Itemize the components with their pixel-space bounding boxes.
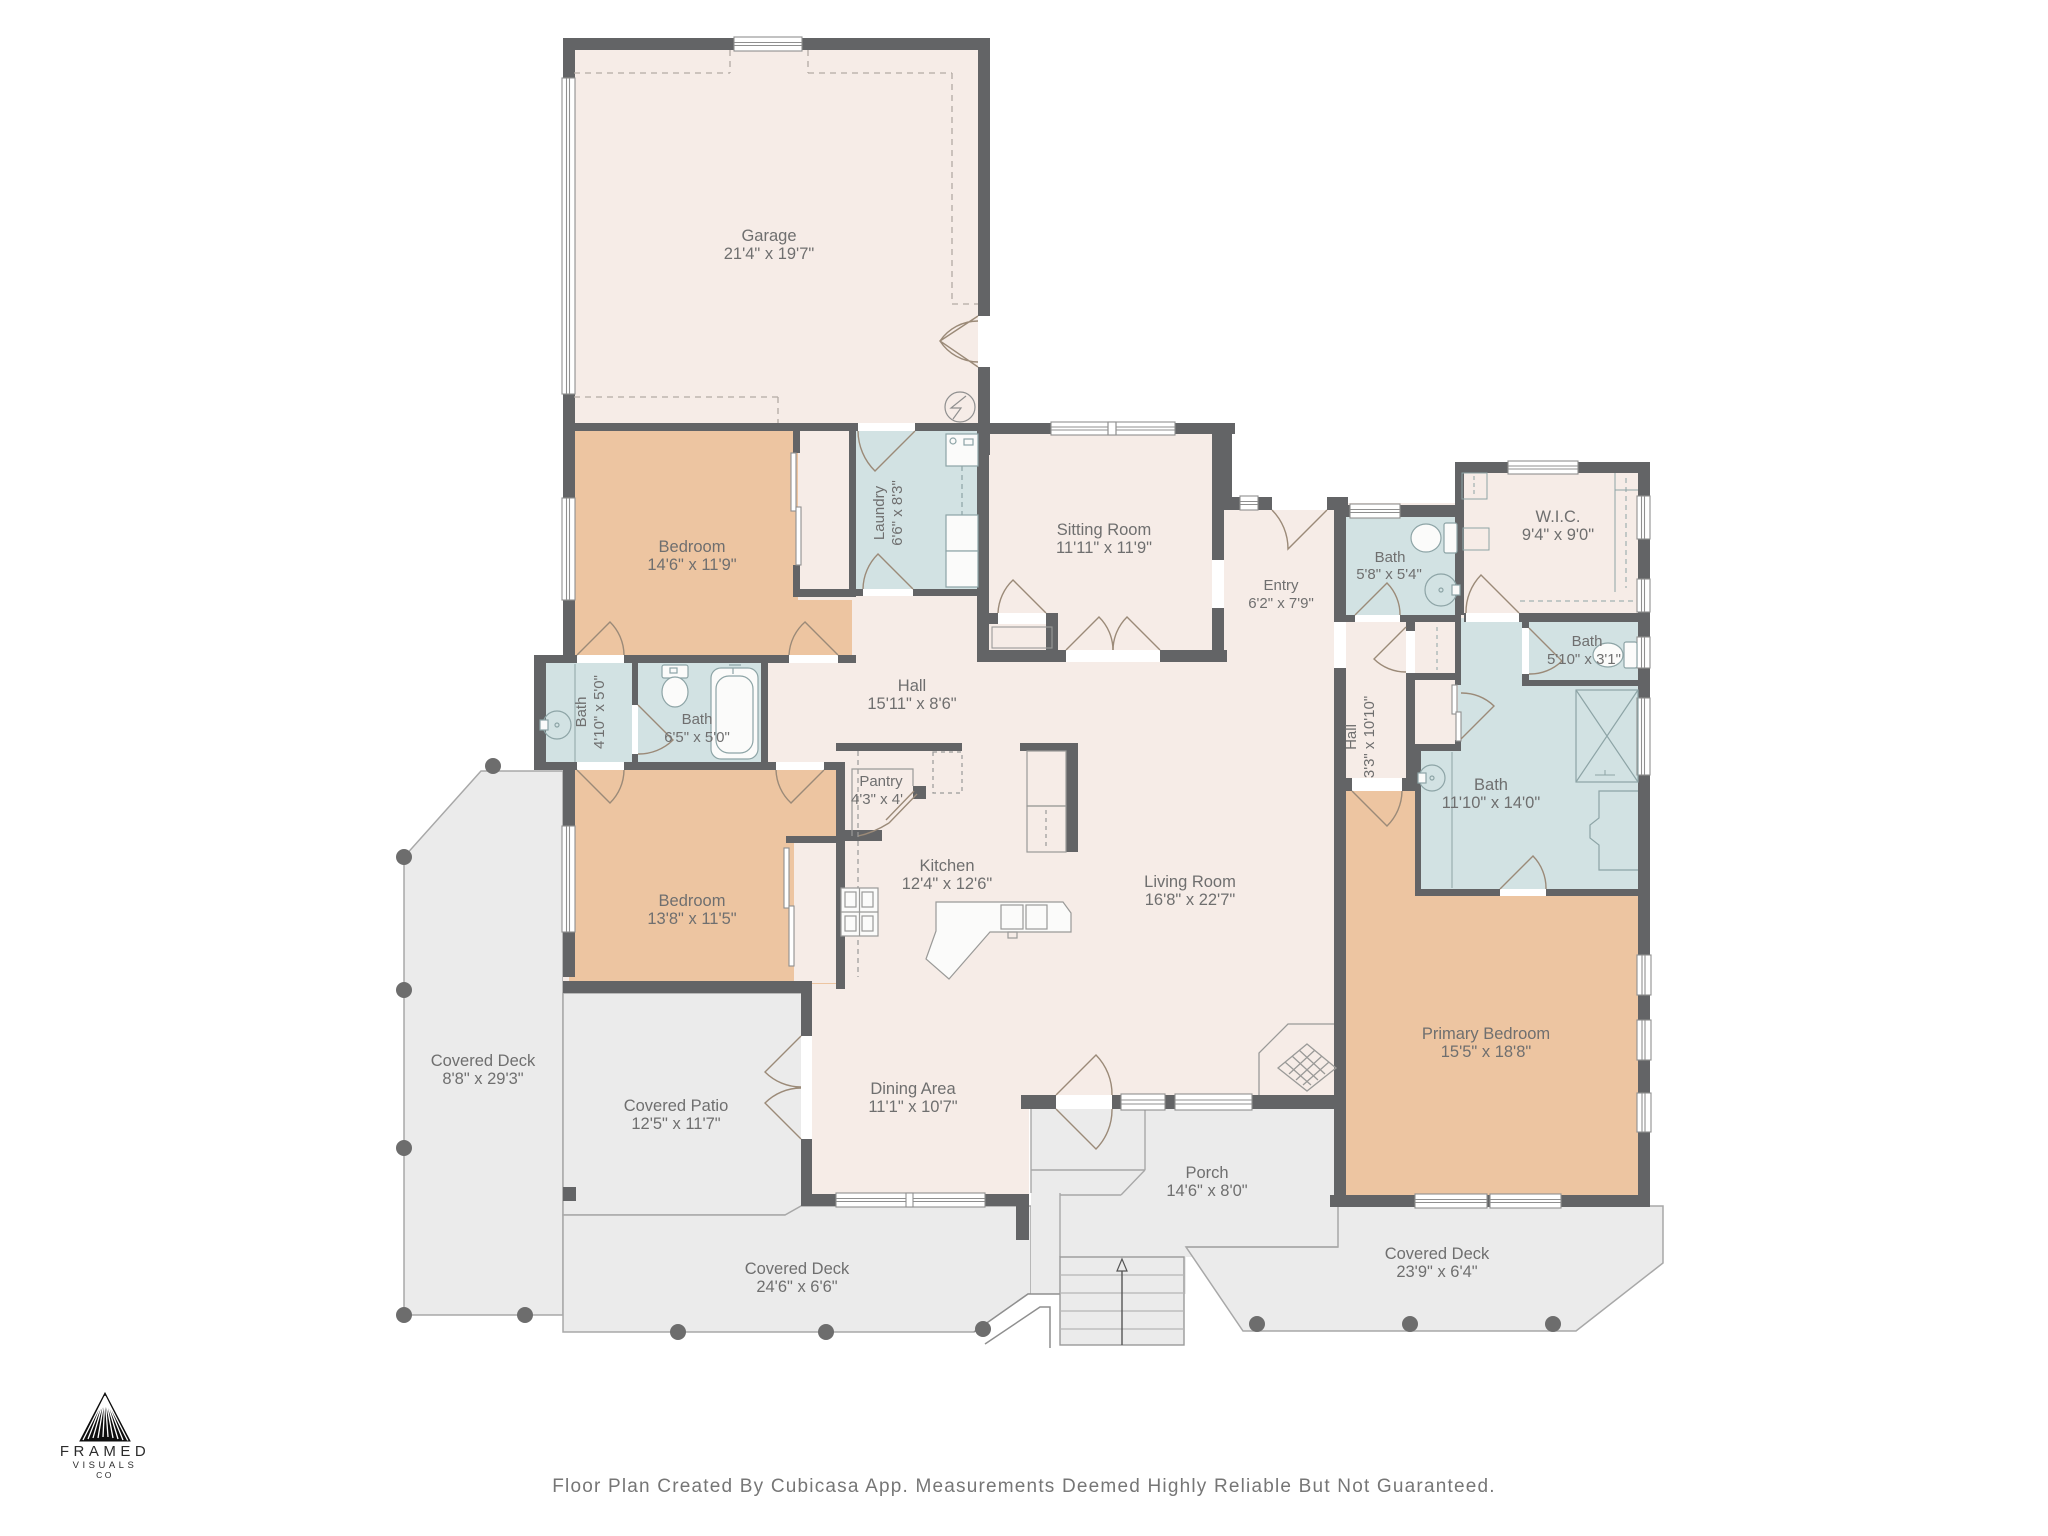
svg-text:14'6" x 11'9": 14'6" x 11'9" xyxy=(647,556,736,574)
svg-text:14'6" x 8'0": 14'6" x 8'0" xyxy=(1166,1182,1247,1200)
svg-text:Garage: Garage xyxy=(741,227,796,245)
svg-text:Bath: Bath xyxy=(1474,776,1508,794)
svg-text:13'8" x 11'5": 13'8" x 11'5" xyxy=(647,910,736,928)
svg-text:5'10" x 3'1": 5'10" x 3'1" xyxy=(1547,651,1621,668)
svg-text:CO: CO xyxy=(96,1470,114,1480)
svg-text:FRAMED: FRAMED xyxy=(60,1443,150,1460)
svg-text:Living Room: Living Room xyxy=(1144,873,1236,891)
svg-text:Kitchen: Kitchen xyxy=(919,857,974,875)
svg-text:Porch: Porch xyxy=(1185,1164,1228,1182)
svg-text:12'5" x 11'7": 12'5" x 11'7" xyxy=(631,1115,720,1133)
svg-text:6'5" x 5'0": 6'5" x 5'0" xyxy=(664,729,730,746)
svg-text:11'10" x 14'0": 11'10" x 14'0" xyxy=(1442,794,1541,812)
svg-text:6'6" x 8'3": 6'6" x 8'3" xyxy=(889,480,906,546)
svg-text:Primary Bedroom: Primary Bedroom xyxy=(1422,1025,1550,1043)
svg-text:12'4" x 12'6": 12'4" x 12'6" xyxy=(902,875,993,893)
svg-text:Hall: Hall xyxy=(898,677,926,695)
svg-text:Covered Deck: Covered Deck xyxy=(745,1260,850,1278)
svg-text:Bedroom: Bedroom xyxy=(659,892,726,910)
svg-text:Entry: Entry xyxy=(1263,577,1299,594)
svg-text:Sitting Room: Sitting Room xyxy=(1057,521,1151,539)
svg-text:Floor Plan Created By Cubicasa: Floor Plan Created By Cubicasa App. Meas… xyxy=(552,1476,1496,1497)
svg-text:8'8" x 29'3": 8'8" x 29'3" xyxy=(442,1070,523,1088)
svg-text:4'3" x 4': 4'3" x 4' xyxy=(851,791,903,808)
svg-text:24'6" x 6'6": 24'6" x 6'6" xyxy=(756,1278,837,1296)
svg-text:5'8" x 5'4": 5'8" x 5'4" xyxy=(1356,566,1422,583)
svg-text:Covered Deck: Covered Deck xyxy=(431,1052,536,1070)
svg-text:Bath: Bath xyxy=(1375,549,1406,566)
svg-text:Hall: Hall xyxy=(1343,724,1360,750)
svg-text:Covered Patio: Covered Patio xyxy=(624,1097,729,1115)
svg-text:21'4" x 19'7": 21'4" x 19'7" xyxy=(724,245,815,263)
svg-text:4'10" x 5'0": 4'10" x 5'0" xyxy=(591,675,608,749)
svg-text:Bath: Bath xyxy=(1572,633,1603,650)
svg-text:6'2" x 7'9": 6'2" x 7'9" xyxy=(1248,595,1314,612)
svg-text:16'8" x 22'7": 16'8" x 22'7" xyxy=(1145,891,1236,909)
svg-text:Bedroom: Bedroom xyxy=(659,538,726,556)
svg-text:15'5" x 18'8": 15'5" x 18'8" xyxy=(1441,1043,1532,1061)
svg-text:9'4" x 9'0": 9'4" x 9'0" xyxy=(1522,526,1594,544)
svg-text:15'11" x 8'6": 15'11" x 8'6" xyxy=(867,695,956,713)
svg-text:W.I.C.: W.I.C. xyxy=(1536,508,1581,526)
svg-text:Bath: Bath xyxy=(682,711,713,728)
svg-text:Dining Area: Dining Area xyxy=(870,1080,956,1098)
svg-text:Pantry: Pantry xyxy=(859,773,903,790)
svg-text:3'3" x 10'10": 3'3" x 10'10" xyxy=(1361,696,1378,778)
svg-text:11'11" x 11'9": 11'11" x 11'9" xyxy=(1056,539,1152,557)
svg-text:11'1" x 10'7": 11'1" x 10'7" xyxy=(868,1098,957,1116)
svg-text:Covered Deck: Covered Deck xyxy=(1385,1245,1490,1263)
svg-text:23'9" x 6'4": 23'9" x 6'4" xyxy=(1396,1263,1477,1281)
svg-text:Bath: Bath xyxy=(573,697,590,728)
svg-text:Laundry: Laundry xyxy=(871,485,888,540)
